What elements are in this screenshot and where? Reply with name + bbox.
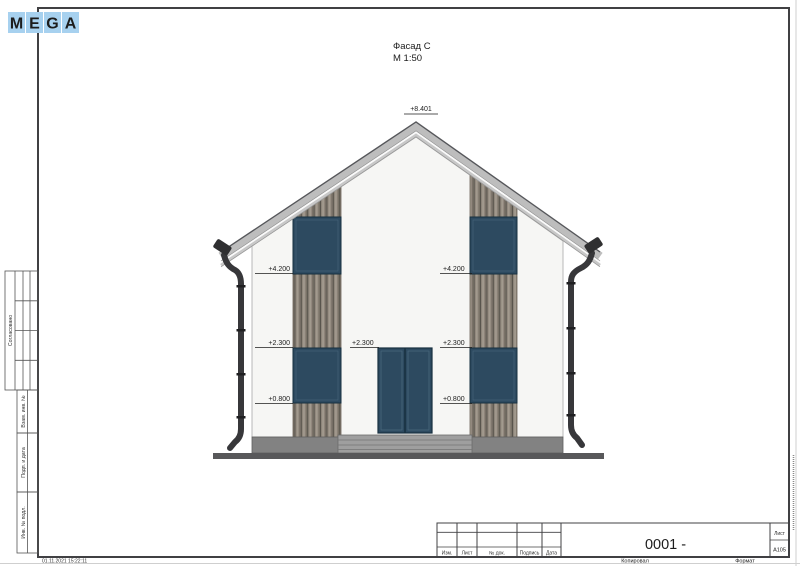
downspout-left [224,255,241,448]
facade-drawing-canvas: M E G A Фасад С М 1:50 [0,0,800,566]
elevation-peak: +8.401 [410,106,432,113]
col-date: Дата [546,551,557,557]
sidebar-label-replace-inv: Взам. инв. № [21,395,27,428]
window-lower-right [470,348,517,403]
entrance-steps [338,435,472,453]
elevation-door: +2.300 [352,340,374,347]
elevation-right-mid: +2.300 [443,340,465,347]
col-list: Лист [462,551,474,557]
sheet-label: Лист [774,531,786,537]
drawing-title: Фасад С М 1:50 [393,41,431,64]
window-upper-left [293,217,341,274]
elevation-left-top: +4.200 [268,266,290,273]
facade-title: Фасад С [393,41,431,52]
format-label: Формат [735,559,755,565]
col-sign: Подпись [520,551,540,557]
logo-letter: M [10,16,23,33]
gost-sidebar: Согласовано Взам. инв. № Подп. и дата Ин… [5,271,38,553]
logo-letter: G [46,16,58,33]
elevation-right-bottom: +0.800 [443,396,465,403]
elevation-right-top: +4.200 [443,266,465,273]
sheet-value: А105 [773,548,786,554]
sidebar-label-approved: Согласовано [8,315,14,346]
col-izm: Изм. [442,551,453,557]
document-number: 0001 - [645,537,686,553]
copied-label: Копировал [621,559,649,565]
col-doc: № док. [489,551,505,557]
drawing-sheet: M E G A Фасад С М 1:50 [0,0,800,566]
window-upper-right [470,217,517,274]
logo-letter: A [65,16,77,33]
building-elevation: +8.401 +4.200 +2.300 +0.800 +2.300 +4.20… [213,106,604,459]
window-lower-left [293,348,341,403]
print-timestamp: 01.11.2021 15:22:11 [42,559,87,565]
elevation-left-mid: +2.300 [268,340,290,347]
facade-scale: М 1:50 [393,53,422,64]
mega-logo: M E G A [8,12,79,33]
sidebar-label-sign-date: Подп. и дата [21,447,27,478]
sidebar-label-inv-original: Инв. № подл. [21,506,27,538]
title-block: Изм. Лист № док. Подпись Дата 0001 - Лис… [437,523,789,557]
ground-line [213,453,604,459]
elevation-left-bottom: +0.800 [268,396,290,403]
entrance-door [378,348,432,433]
logo-letter: E [29,16,40,33]
